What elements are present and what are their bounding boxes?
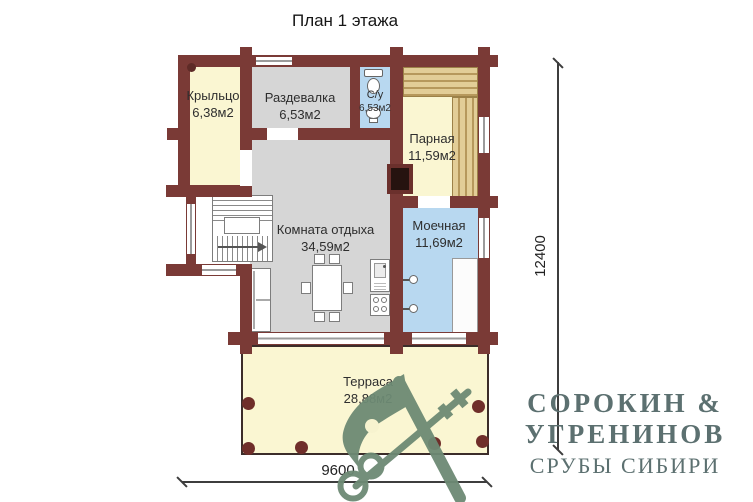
shower-head (409, 304, 418, 313)
washbasin-base (369, 118, 378, 123)
window-bay (187, 204, 195, 254)
wall-top (178, 55, 490, 67)
room-label-porch: Крыльцо 6,38м2 (178, 88, 248, 122)
wall-porch-left (178, 67, 190, 185)
room-area: 11,69м2 (398, 235, 480, 252)
room-name: Крыльцо (178, 88, 248, 105)
wall-stub (240, 345, 252, 354)
logo-text: СОРОКИН & УГРЕНИНОВ СРУБЫ СИБИРИ (500, 388, 750, 479)
room-area: 34,59м2 (258, 239, 393, 256)
room-area: 6,38м2 (178, 105, 248, 122)
logo-line-2: УГРЕНИНОВ (500, 419, 750, 450)
room-label-changing: Раздевалка 6,53м2 (254, 90, 346, 124)
wall-stub (390, 47, 403, 55)
page-title: План 1 этажа (260, 11, 430, 31)
room-name: Комната отдыха (258, 222, 393, 239)
wall-stub (240, 47, 252, 55)
terrace-column (242, 397, 255, 410)
sofa-cushion-line (256, 299, 270, 301)
window-steam-right (479, 117, 489, 153)
room-area: 11,59м2 (396, 148, 468, 165)
chair (343, 282, 353, 294)
wall-stub (490, 332, 498, 345)
wall-stub (478, 47, 490, 55)
stove-burner (381, 306, 387, 312)
staircase-void (224, 217, 260, 234)
chair (314, 312, 325, 322)
door-steam-washing (418, 196, 450, 208)
sauna-bench-top (403, 67, 478, 97)
room-name: Моечная (398, 218, 480, 235)
window-washing-right (479, 218, 489, 258)
dining-table (312, 265, 342, 311)
room-name: С/у (351, 88, 399, 102)
room-area: 6,53м2 (351, 102, 399, 115)
chair (329, 312, 340, 322)
toilet-tank (364, 69, 383, 77)
wall-stub (478, 345, 490, 354)
wall-stub (490, 55, 498, 67)
stove-burner (373, 297, 379, 303)
sofa-back-line (253, 271, 255, 329)
dimension-label-vertical: 12400 (532, 228, 548, 284)
shower-tray (452, 258, 478, 334)
logo-line-1: СОРОКИН & (500, 388, 750, 419)
stove-burner (373, 306, 379, 312)
logo-emblem (330, 360, 505, 502)
wall-stub (167, 128, 178, 140)
room-label-lounge: Комната отдыха 34,59м2 (258, 222, 393, 256)
window-lounge-terrace (258, 333, 384, 344)
staircase-direction-line (218, 246, 260, 248)
window-washing-terrace (412, 333, 466, 344)
wall-stub (390, 345, 403, 354)
door-changing-lounge (267, 128, 298, 140)
door-porch-changing (240, 150, 252, 186)
floor-plan-page: План 1 этажа (0, 0, 753, 502)
terrace-column (295, 441, 308, 454)
terrace-column (242, 442, 255, 455)
room-porch (182, 61, 244, 187)
window-bay-bottom (202, 265, 236, 275)
room-area: 6,53м2 (254, 107, 346, 124)
wall-right (478, 55, 490, 345)
wall-changing-lounge (240, 128, 403, 140)
stove-burner (381, 297, 387, 303)
room-label-wc: С/у 6,53м2 (351, 88, 399, 115)
sauna-stove-firebox (391, 168, 409, 190)
logo-line-3: СРУБЫ СИБИРИ (500, 453, 750, 479)
room-name: Раздевалка (254, 90, 346, 107)
kitchen-faucet (383, 265, 386, 268)
window-changing-top (256, 57, 292, 65)
chair (301, 282, 311, 294)
wall-stub (228, 332, 240, 345)
shower-head (409, 275, 418, 284)
porch-post (187, 63, 196, 72)
room-label-washing: Моечная 11,69м2 (398, 218, 480, 252)
wall-stub (490, 196, 498, 208)
kitchen-cabinet-hatch (374, 281, 386, 290)
room-label-steam: Парная 11,59м2 (396, 131, 468, 165)
room-name: Парная (396, 131, 468, 148)
